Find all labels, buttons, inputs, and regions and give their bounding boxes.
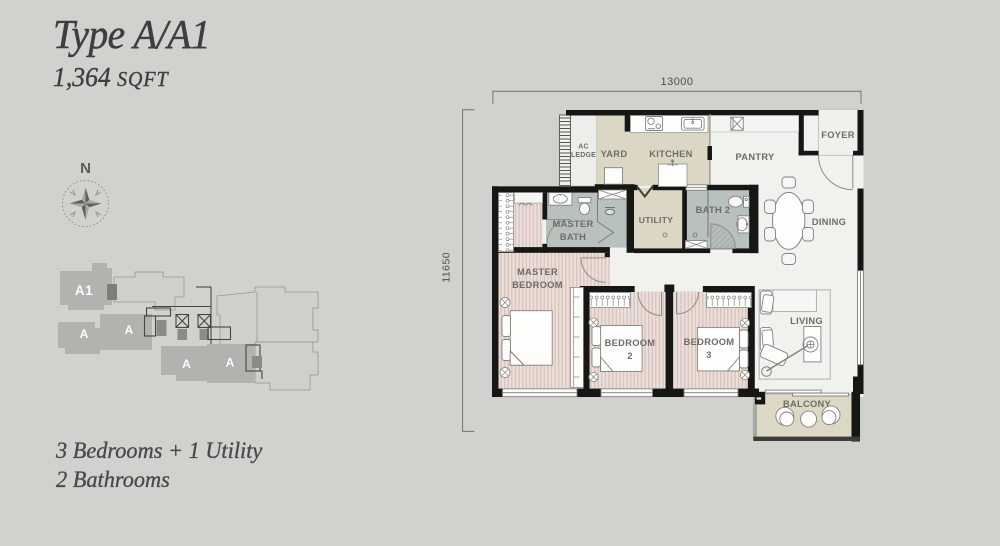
svg-text:BEDROOM: BEDROOM (684, 337, 735, 347)
svg-text:11650: 11650 (441, 252, 453, 283)
svg-text:FOYER: FOYER (821, 130, 855, 140)
svg-text:13000: 13000 (660, 76, 693, 88)
svg-text:PANTRY: PANTRY (736, 152, 775, 162)
svg-text:BEDROOM: BEDROOM (512, 280, 563, 290)
svg-text:YARD: YARD (601, 149, 628, 159)
svg-text:N: N (80, 160, 91, 177)
svg-text:A: A (182, 357, 191, 371)
svg-text:AC: AC (578, 144, 589, 151)
svg-text:BATH 2: BATH 2 (696, 205, 731, 215)
svg-text:A: A (80, 327, 89, 341)
svg-text:BEDROOM: BEDROOM (605, 338, 656, 348)
svg-text:UTILITY: UTILITY (639, 215, 674, 225)
svg-text:LIVING: LIVING (790, 316, 823, 326)
svg-text:DINING: DINING (812, 217, 846, 227)
svg-text:MASTER: MASTER (552, 219, 593, 229)
svg-text:BATH: BATH (560, 232, 586, 242)
svg-text:A: A (226, 356, 235, 370)
svg-text:2: 2 (627, 351, 632, 361)
svg-text:LEDGE: LEDGE (571, 152, 596, 159)
svg-text:A: A (125, 323, 134, 337)
svg-text:BALCONY: BALCONY (783, 399, 832, 409)
svg-text:3: 3 (706, 350, 711, 360)
svg-text:KITCHEN: KITCHEN (649, 149, 692, 159)
svg-text:A1: A1 (75, 283, 93, 298)
svg-text:MASTER: MASTER (517, 267, 558, 277)
